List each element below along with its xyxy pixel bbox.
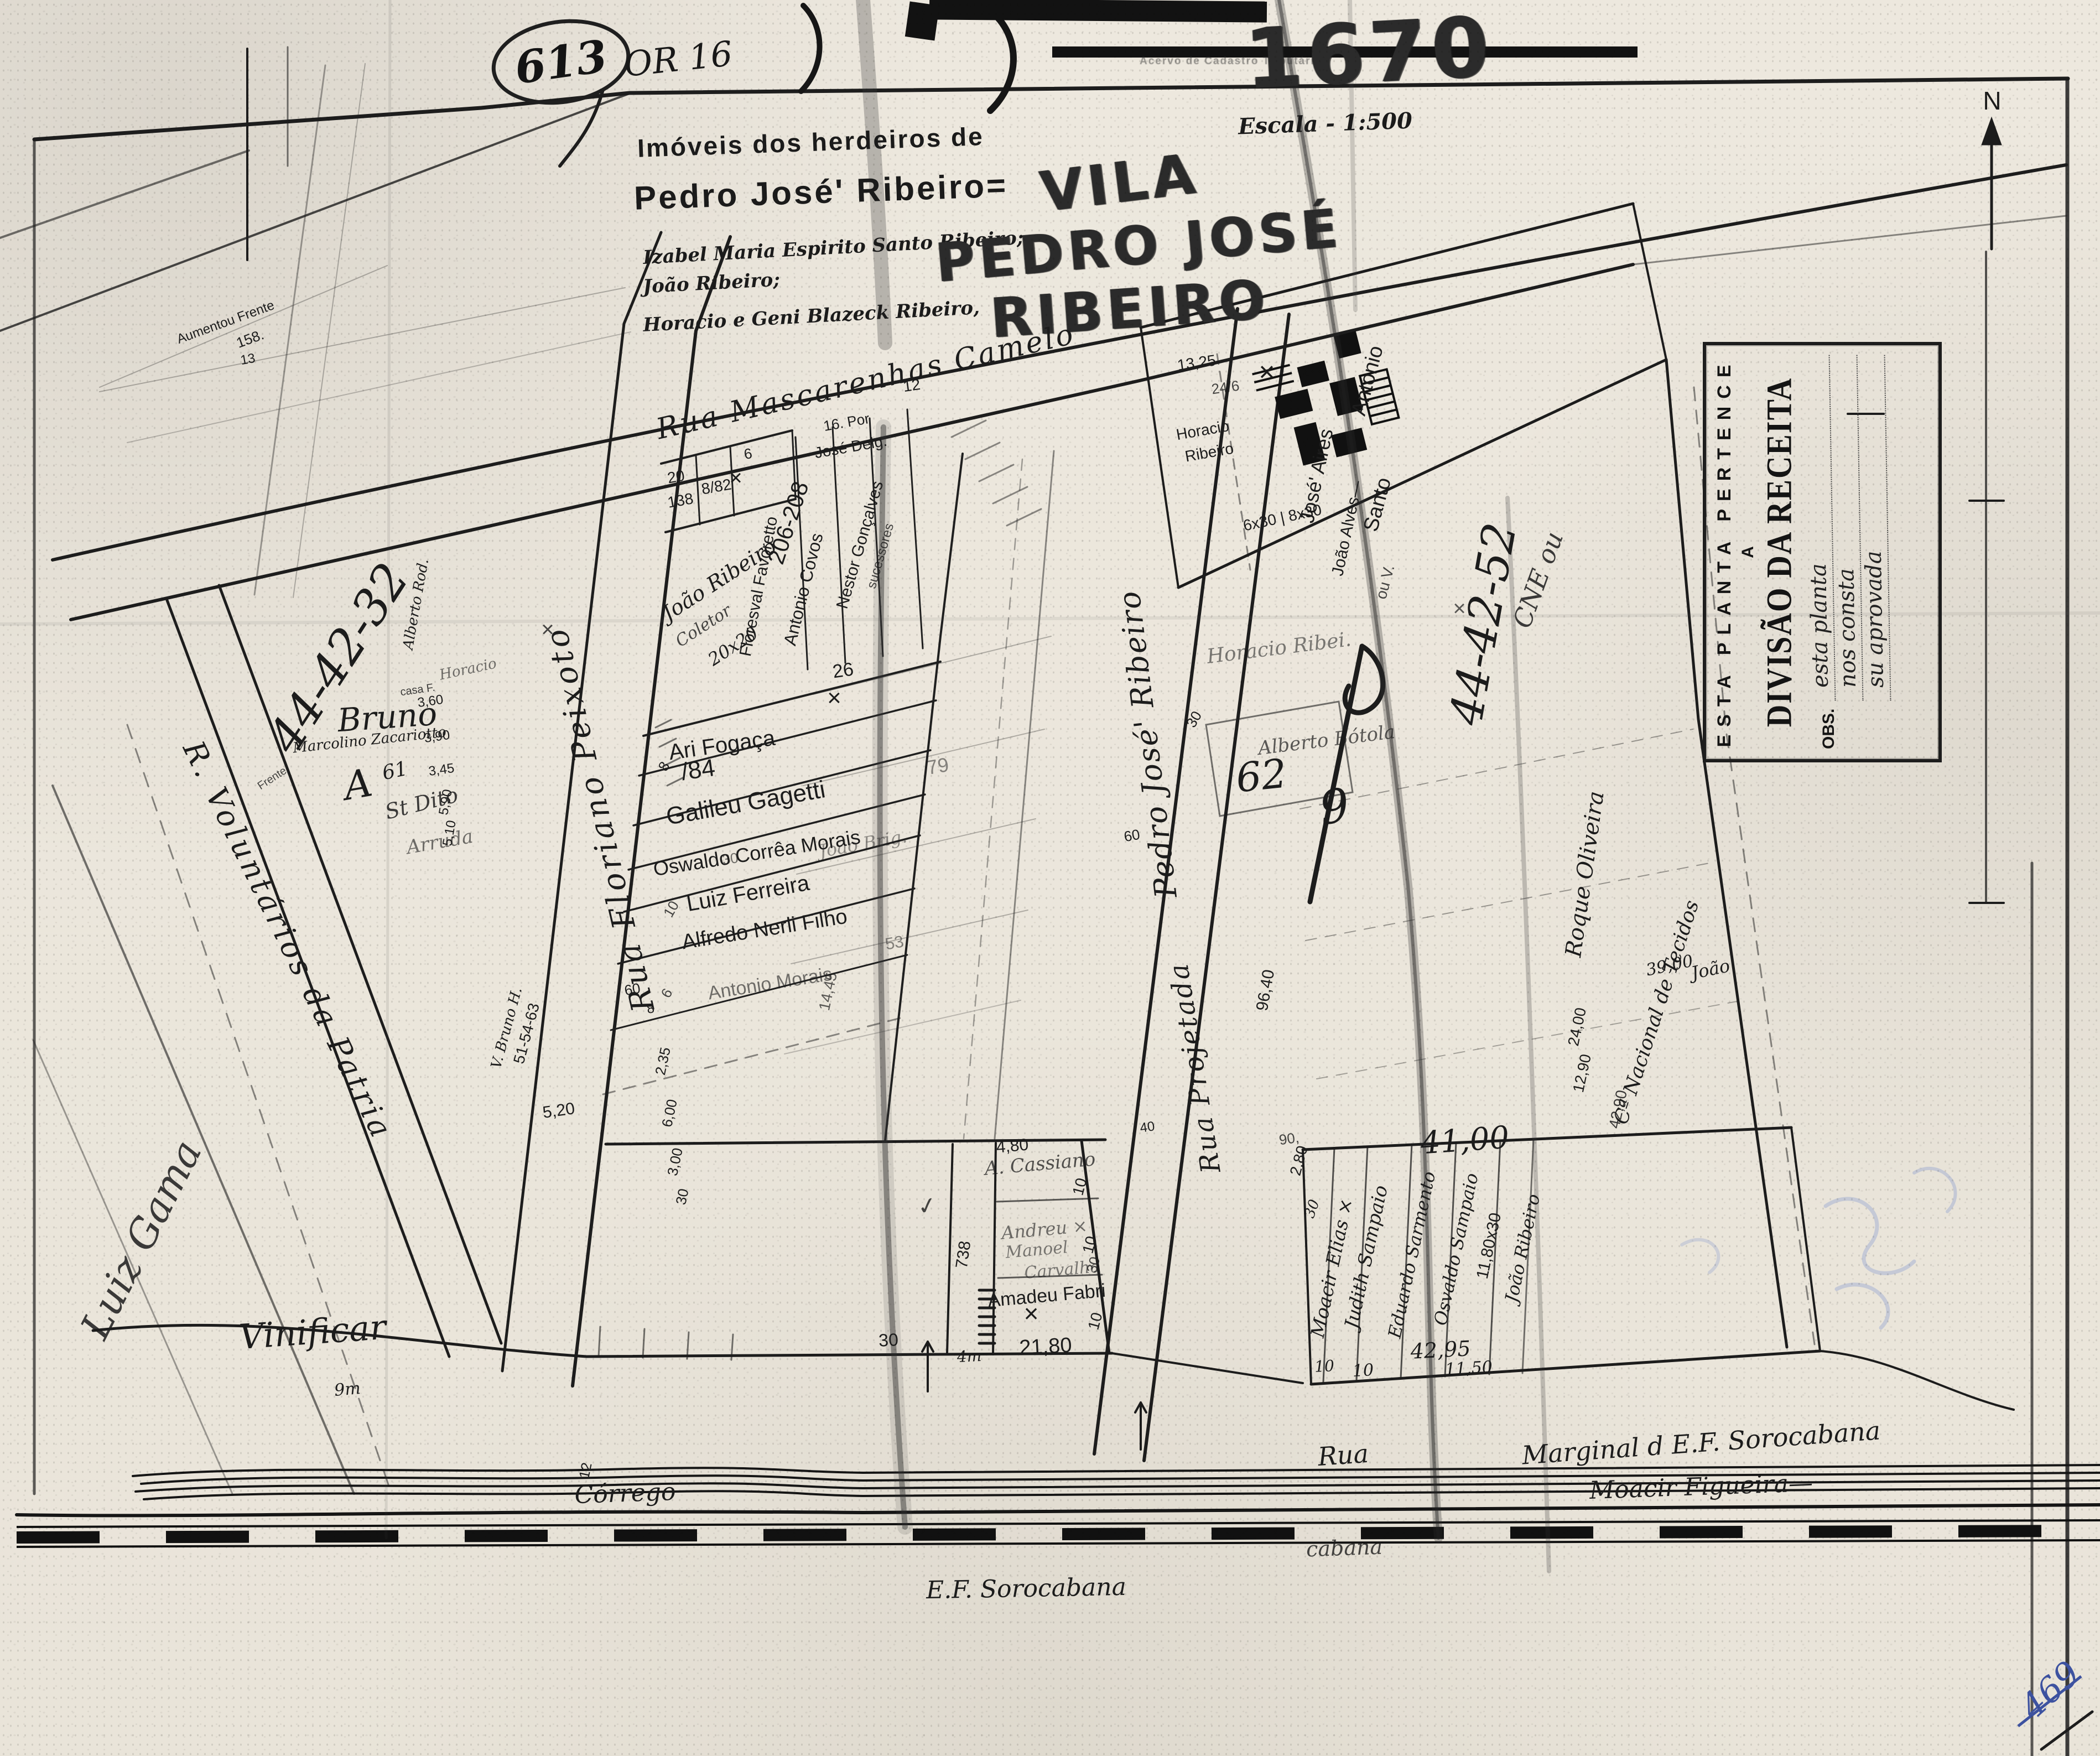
n3-60: 3,60 (417, 693, 444, 710)
scanned-cadastral-map: 613 OR 16 Acervo de Cadastro Tributário … (0, 0, 2100, 1756)
corrego: Córrego (574, 1480, 676, 1508)
n9-big: 9 (1317, 782, 1353, 832)
n30-mid2: 30 (1084, 1255, 1103, 1275)
x-mark-1: × (827, 686, 841, 710)
rua-marginal-rua: Rua (1317, 1441, 1370, 1469)
stamp-line3: DIVISÃO DA RECEITA (1759, 347, 1800, 757)
n11-50: 11,50 (1444, 1359, 1493, 1378)
ink-blob (905, 2, 939, 41)
n4-80: 4,80 (996, 1137, 1030, 1156)
x-mark-5: × (541, 619, 554, 641)
x-mark-top: × (729, 467, 742, 489)
ghost-blue-ink (1682, 1168, 1956, 1328)
registry-number: 613 (512, 30, 610, 94)
n21-80: 21,80 (1019, 1335, 1073, 1359)
n20-box: 20 (666, 468, 686, 486)
n60-right: 60 (1123, 827, 1141, 844)
n61: 61 (381, 759, 409, 784)
n42-95: 42,95 (1410, 1338, 1472, 1362)
railroad (17, 1520, 2100, 1547)
n41-00: 41,00 (1420, 1122, 1510, 1159)
n26: 26 (831, 660, 855, 682)
n53: 53 (884, 933, 905, 953)
faint-middle-column (784, 420, 1054, 1139)
n30-left: 30 (673, 1187, 690, 1206)
stamp-line2: A (1739, 347, 1758, 757)
protocol-number: 1670 (1243, 0, 1496, 108)
vinificar: Vinificar (238, 1310, 387, 1354)
n30-low: 30 (878, 1331, 898, 1349)
n3-90: 3,90 (423, 729, 451, 745)
ef-sorocabana: E.F. Sorocabana (926, 1575, 1126, 1603)
n13: 13 (240, 352, 256, 367)
stamp-line1: ESTA PLANTA PERTENCE (1714, 347, 1735, 757)
stamp-content: ESTA PLANTA PERTENCE A DIVISÃO DA RECEIT… (1712, 347, 1933, 757)
n79: 79 (925, 755, 950, 778)
n12-low: 12 (576, 1461, 594, 1480)
n3-45: 3,45 (428, 762, 455, 778)
n738: 738 (954, 1240, 974, 1270)
n10-b: 10 (1352, 1362, 1374, 1380)
x-mark-3: × (1259, 358, 1275, 386)
stamp-note-line3: su aprovada (1858, 355, 1891, 701)
n10-a: 10 (1314, 1358, 1334, 1375)
n60-left: 60 (623, 981, 642, 998)
stamp-obs-label: OBS. (1820, 709, 1838, 749)
n9m: 9m (334, 1380, 361, 1399)
revenue-division-stamp: ESTA PLANTA PERTENCE A DIVISÃO DA RECEIT… (1703, 342, 1942, 762)
x-mark-2: × (1024, 1301, 1039, 1326)
n40: 40 (1139, 1120, 1156, 1135)
n84: /84 (680, 756, 717, 785)
n24-6: 24/6 (1210, 378, 1240, 397)
n30-mid: 30 (721, 850, 739, 867)
n12-top: 12 (902, 377, 922, 394)
n4m: 4m (957, 1348, 982, 1365)
ink-bar-top (929, 0, 1267, 23)
stamp-note: esta planta nos consta su aprovada (1805, 355, 1888, 701)
n62: 62 (1234, 753, 1289, 798)
north-n: N (1983, 88, 2001, 113)
ef-sorocabana-partial: cabana (1306, 1536, 1382, 1560)
